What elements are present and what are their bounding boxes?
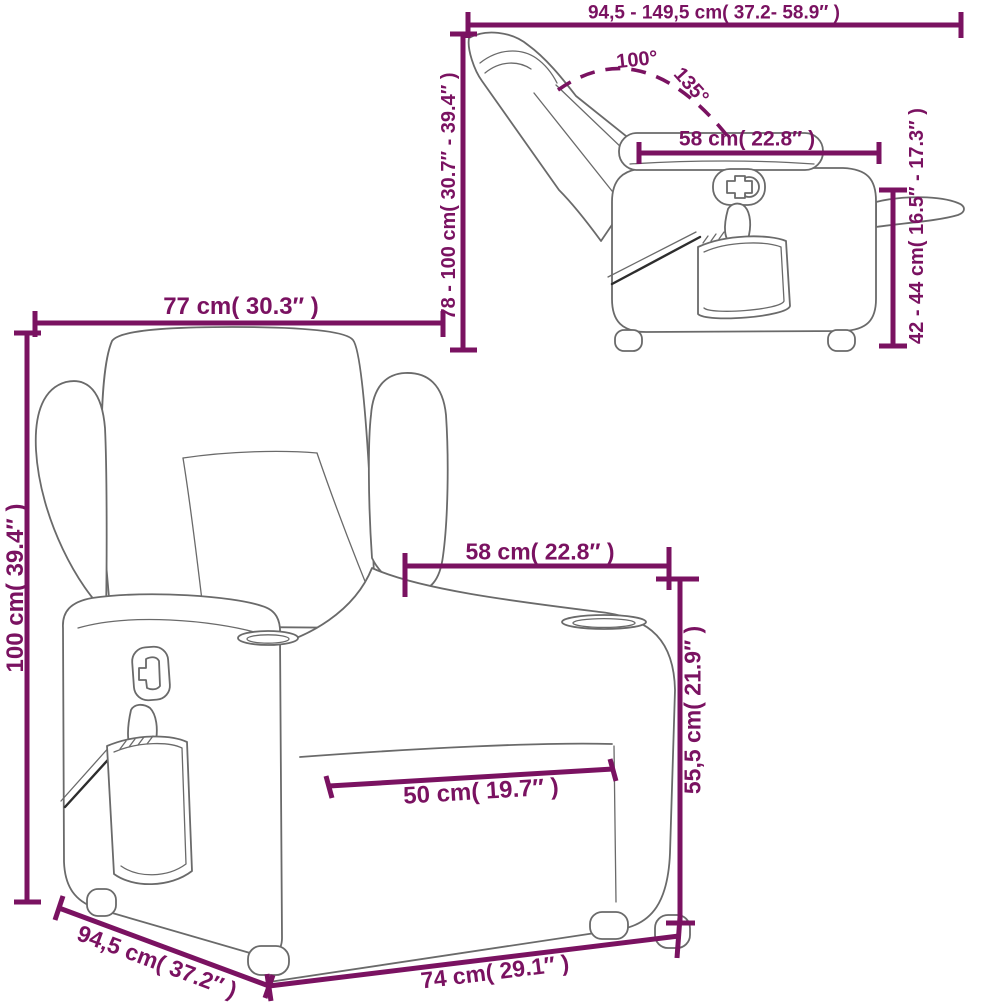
dim-label-side-height-range: 78 - 100 cm( 30.7″ - 39.4″ ) [439,72,459,319]
front-view-chair-drawing [36,327,690,982]
dim-label-front-overall-width: 77 cm( 30.3″ ) [163,295,319,319]
front-pocket [107,736,192,884]
side-recline-lever [713,169,765,205]
dim-label-recline-angle-min: 100° [615,48,658,72]
front-recline-lever [131,646,171,701]
dim-label-side-armrest-length: 58 cm( 22.8″ ) [679,129,815,150]
front-right-cupholder-inner [573,619,635,628]
front-foot-front-right [590,912,628,939]
dim-label-side-width-range: 94,5 - 149,5 cm( 37.2- 58.9″ ) [588,4,840,23]
front-foot-back-left [87,889,116,916]
side-foot-left [615,330,642,351]
front-right-wing [369,373,448,590]
dim-tick [677,917,680,958]
product-dimension-diagram: 94,5 - 149,5 cm( 37.2- 58.9″ ) 100° 135°… [0,0,1000,1003]
dim-label-side-footrest-height: 42 - 44 cm( 16.5″ - 17.3″ ) [907,108,927,344]
side-foot-right [828,330,855,351]
diagram-canvas [0,0,1000,1003]
front-left-wing [36,381,107,612]
front-foot-front-left [248,946,289,975]
front-left-cupholder-inner [247,635,289,643]
front-foot-back-right [655,915,690,948]
dim-label-front-backrest-width: 58 cm( 22.8″ ) [465,541,614,564]
front-backrest [101,327,375,628]
dim-label-front-overall-height: 100 cm( 39.4″ ) [4,504,28,673]
dim-label-front-seat-height: 55,5 cm( 21.9″ ) [682,626,705,794]
